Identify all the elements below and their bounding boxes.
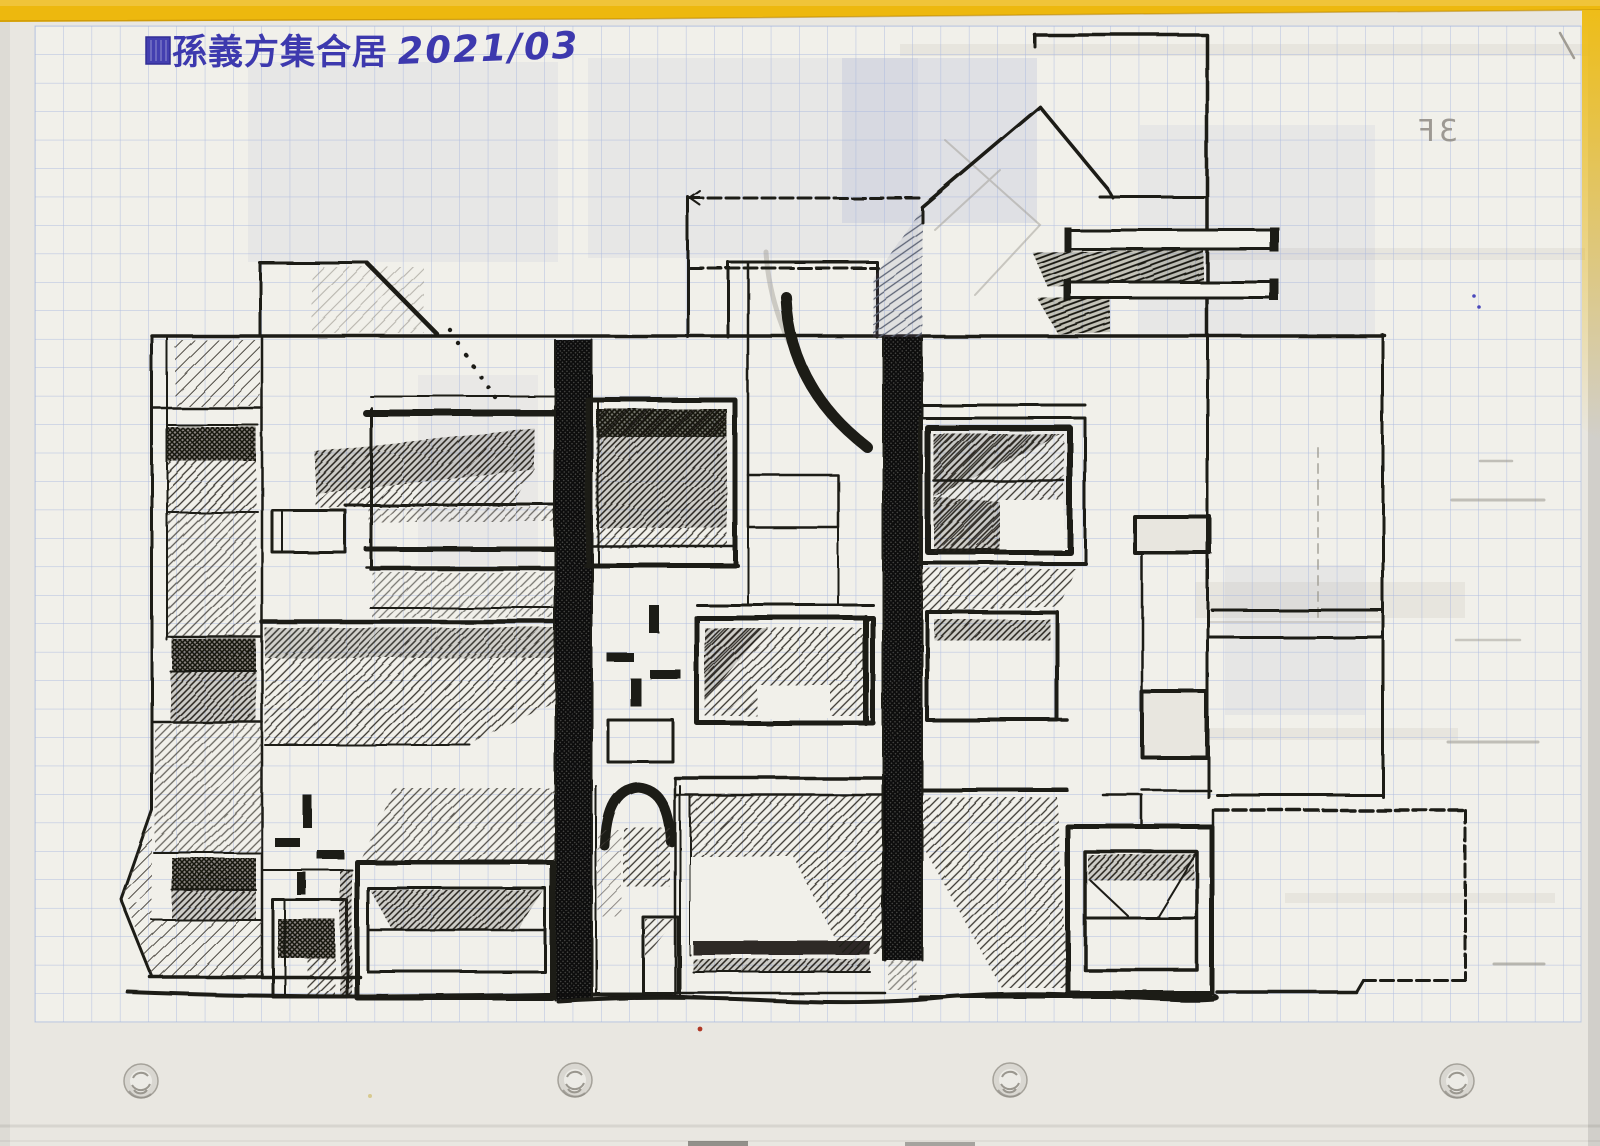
mirrored-floor-note: 3F xyxy=(1414,114,1458,149)
window-center-left xyxy=(585,400,737,565)
paper-speck xyxy=(368,1094,372,1098)
small-window-lower xyxy=(1142,692,1207,757)
ink-stamp-icon xyxy=(146,37,170,64)
scanned-notebook-page: 孫義方集合居 2021/03 3F xyxy=(0,0,1600,1146)
punch-hole xyxy=(1440,1064,1474,1098)
storefront-center xyxy=(675,778,885,998)
punch-hole xyxy=(558,1063,592,1097)
punch-hole xyxy=(993,1063,1027,1097)
title-text: 孫義方集合居 xyxy=(172,33,388,73)
blue-ink-speck xyxy=(1472,294,1476,298)
window-right-upper xyxy=(920,405,1085,563)
red-speck xyxy=(698,1027,703,1032)
sketch-canvas: 孫義方集合居 2021/03 3F xyxy=(0,0,1600,1146)
blue-ink-speck xyxy=(1477,305,1481,309)
date-text: 2021/03 xyxy=(397,24,580,73)
small-window-upper xyxy=(1135,517,1210,553)
punch-hole xyxy=(124,1064,158,1098)
